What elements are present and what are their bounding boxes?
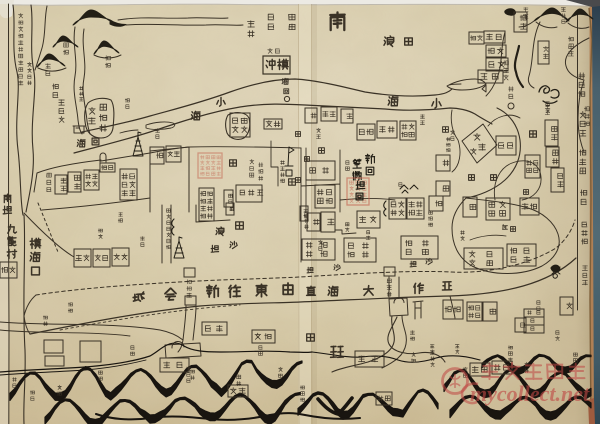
svg-text:mycollect.net: mycollect.net [470,381,590,406]
